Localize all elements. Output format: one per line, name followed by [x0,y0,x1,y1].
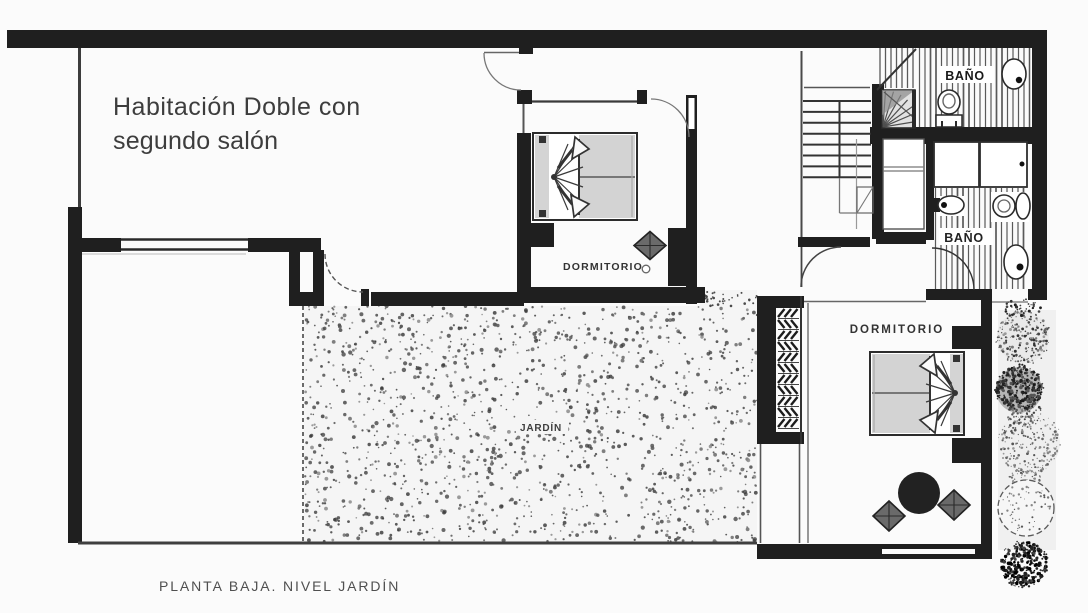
svg-text:segundo salón: segundo salón [113,127,278,155]
svg-text:PLANTA BAJA. NIVEL JARDÍN: PLANTA BAJA. NIVEL JARDÍN [159,578,400,594]
svg-text:DORMITORIO: DORMITORIO [563,261,643,273]
svg-text:JARDÍN: JARDÍN [520,421,562,434]
svg-text:DORMITORIO: DORMITORIO [850,324,945,336]
svg-text:Habitación Doble con: Habitación Doble con [113,93,361,121]
svg-text:BAÑO: BAÑO [945,68,985,83]
svg-text:BAÑO: BAÑO [944,230,984,245]
